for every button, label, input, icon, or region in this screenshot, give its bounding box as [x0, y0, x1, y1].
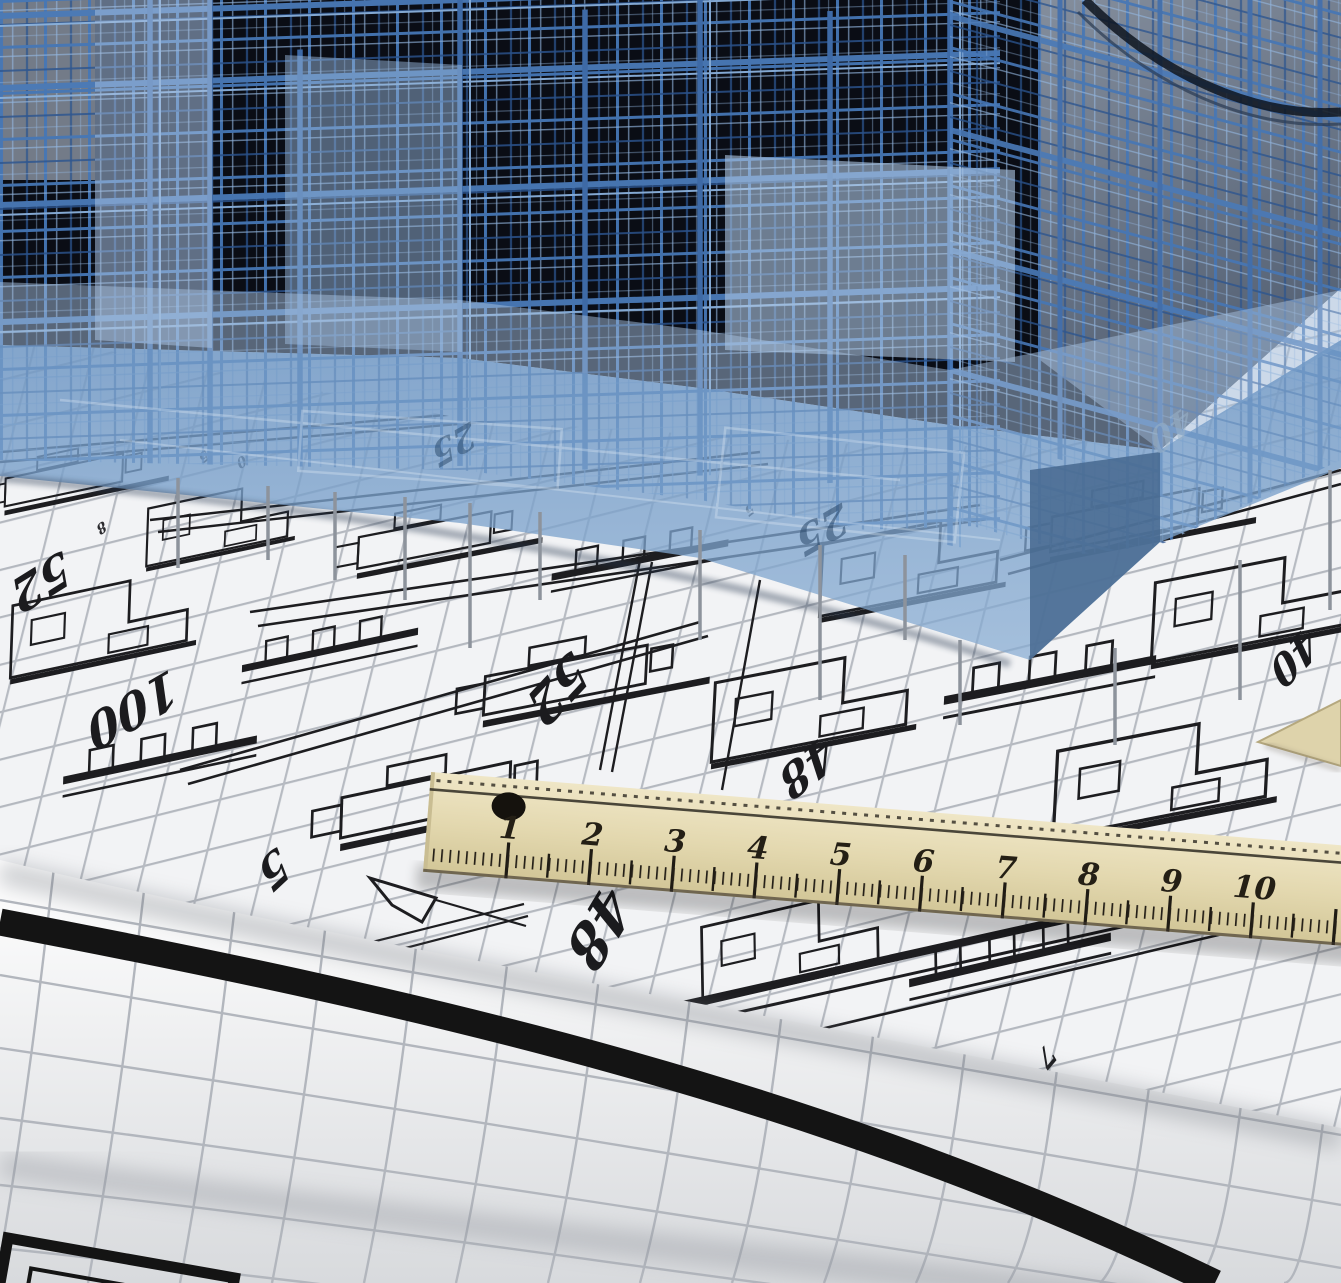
ruler-number-6: 6: [911, 843, 935, 881]
ruler-number-9: 9: [1160, 863, 1184, 901]
ruler-number-1: 1: [498, 810, 522, 848]
ruler-number-10: 10: [1231, 869, 1277, 908]
ruler-number-3: 3: [663, 823, 687, 861]
ruler-number-8: 8: [1076, 856, 1101, 894]
ruler-number-7: 7: [994, 850, 1019, 888]
glass-panel-center-wall: [725, 155, 1015, 362]
blueprint-scene: 52 100 52 48 40 48 5 7 5 0 8 5: [0, 0, 1341, 1283]
ruler-number-5: 5: [829, 836, 853, 874]
blueprint-scene-svg: 52 100 52 48 40 48 5 7 5 0 8 5: [0, 0, 1341, 1283]
ruler-number-2: 2: [579, 816, 604, 854]
ruler-number-4: 4: [746, 830, 770, 868]
